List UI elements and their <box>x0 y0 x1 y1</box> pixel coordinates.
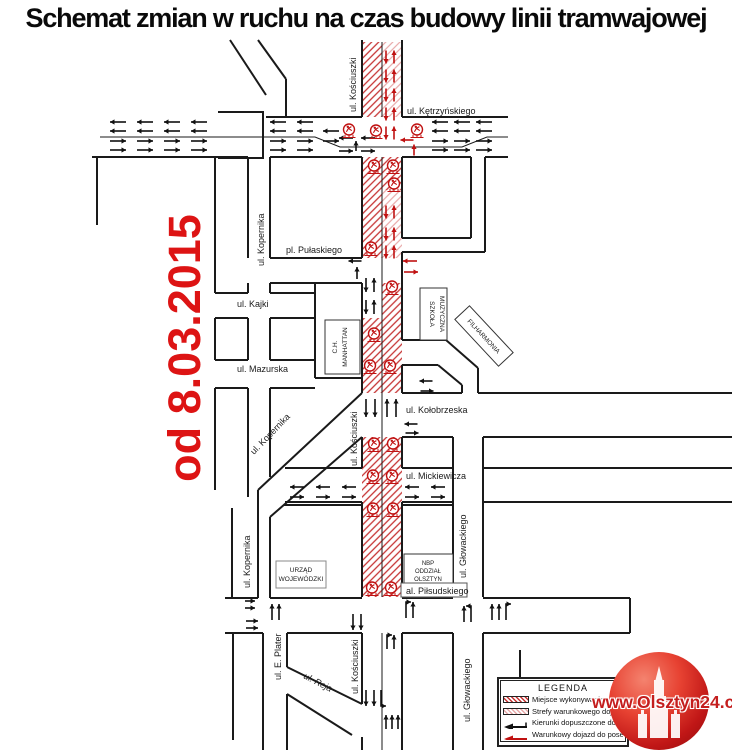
traffic-arrow <box>245 598 255 603</box>
traffic-arrow <box>245 605 255 610</box>
traffic-arrow <box>371 690 376 706</box>
traffic-arrow <box>387 632 392 649</box>
street-label-pulaskiego: pl. Pułaskiego <box>286 245 342 255</box>
building-label-manhattan-1: C.H. <box>332 340 339 353</box>
traffic-arrow <box>371 300 376 314</box>
building-label-manhattan-2: MANHATTAN <box>342 327 349 367</box>
traffic-arrow <box>246 625 258 630</box>
street-label-glowackiego-mid: ul. Głowackiego <box>458 514 468 578</box>
traffic-arrow <box>431 494 445 499</box>
traffic-arrow <box>383 127 388 140</box>
traffic-arrow <box>466 603 471 622</box>
page-title: Schemat zmian w ruchu na czas budowy lin… <box>0 0 732 37</box>
traffic-arrow <box>363 690 368 706</box>
traffic-arrow <box>393 399 398 417</box>
traffic-arrow <box>270 138 286 143</box>
traffic-arrow <box>405 494 419 499</box>
traffic-arrow <box>454 138 470 143</box>
traffic-arrow <box>363 300 368 314</box>
legend-label: Warunkowy dojazd do posesji <box>532 730 623 739</box>
traffic-arrow <box>110 128 126 133</box>
legend-label: Kierunki dopuszczone do ruchu <box>532 718 623 727</box>
traffic-arrow <box>406 430 419 435</box>
traffic-arrow <box>269 604 274 620</box>
traffic-arrow <box>354 267 359 279</box>
traffic-arrow <box>432 128 448 133</box>
traffic-arrow <box>454 147 470 152</box>
building-label-nbp-2: ODDZIAŁ <box>415 569 442 575</box>
traffic-arrow <box>363 399 368 417</box>
traffic-arrow <box>431 484 445 489</box>
traffic-arrow <box>339 148 353 153</box>
street-label-mickiewicza: ul. Mickiewicza <box>406 471 466 481</box>
hatch-dense-swatch <box>503 696 529 703</box>
building-label-szkola-2: MUZYCZNA <box>438 296 445 333</box>
traffic-arrow <box>391 127 396 140</box>
traffic-arrow <box>342 484 356 489</box>
street-label-pilsudskiego: al. Piłsudskiego <box>406 586 469 596</box>
traffic-arrow <box>432 119 448 124</box>
traffic-arrow <box>405 484 419 489</box>
street-label-kosciuszki-bottom: ul. Kościuszki <box>350 639 360 694</box>
traffic-arrow <box>361 148 375 153</box>
traffic-arrow <box>383 715 388 729</box>
traffic-arrow <box>476 138 492 143</box>
traffic-arrow <box>349 258 362 263</box>
traffic-arrow <box>246 618 258 623</box>
traffic-arrow <box>297 128 313 133</box>
traffic-arrow <box>476 119 492 124</box>
traffic-arrow <box>411 145 416 156</box>
traffic-arrow <box>164 128 180 133</box>
traffic-arrow <box>461 606 466 622</box>
traffic-arrow <box>404 269 418 274</box>
traffic-arrow <box>454 119 470 124</box>
black-arrow-icon <box>503 718 529 727</box>
traffic-arrow <box>316 494 330 499</box>
street-label-kosciuszki-mid: ul. Kościuszki <box>349 411 359 466</box>
traffic-arrow <box>476 128 492 133</box>
traffic-arrow <box>297 138 313 143</box>
olsztyn24-watermark-text: www.Olsztyn24.com <box>592 692 732 713</box>
traffic-scheme-page: ul. Kętrzyńskiego ul. Kościuszki ul. Koś… <box>0 0 732 750</box>
street-label-kosciuszki-top: ul. Kościuszki <box>348 57 358 112</box>
traffic-arrow <box>371 278 376 292</box>
traffic-arrow <box>137 147 153 152</box>
street-label-reja: ul. Reja <box>302 671 334 694</box>
traffic-arrow <box>191 138 207 143</box>
building-label-urzad-1: URZĄD <box>290 567 313 574</box>
traffic-arrow <box>297 119 313 124</box>
traffic-arrow <box>432 138 448 143</box>
traffic-arrow <box>403 258 417 263</box>
traffic-arrow <box>489 604 494 620</box>
traffic-arrow <box>137 138 153 143</box>
traffic-arrow <box>164 119 180 124</box>
traffic-arrow <box>363 278 368 292</box>
traffic-arrow <box>496 604 501 620</box>
street-label-mazurska: ul. Mazurska <box>237 364 288 374</box>
traffic-arrow <box>391 635 396 649</box>
traffic-arrow <box>358 614 363 630</box>
traffic-arrow <box>350 614 355 630</box>
roadworks-icon <box>370 125 383 139</box>
traffic-arrow <box>410 602 415 618</box>
traffic-arrow <box>405 421 418 426</box>
traffic-arrow <box>381 690 386 709</box>
traffic-arrow <box>506 601 511 620</box>
traffic-arrow <box>432 147 448 152</box>
traffic-arrow <box>476 147 492 152</box>
legend-item-conditional-access: Warunkowy dojazd do posesji <box>503 729 623 741</box>
traffic-arrow <box>270 147 286 152</box>
street-label-kajki: ul. Kajki <box>237 299 269 309</box>
traffic-arrow <box>323 128 339 133</box>
traffic-arrow <box>406 599 411 618</box>
street-label-kolobrzeska: ul. Kołobrzeska <box>406 405 468 415</box>
traffic-arrow <box>401 137 414 142</box>
legend-item-allowed-directions: Kierunki dopuszczone do ruchu <box>503 717 623 729</box>
building-label-urzad-2: WOJEWÓDZKI <box>279 574 324 583</box>
traffic-arrow <box>164 147 180 152</box>
traffic-arrow <box>137 128 153 133</box>
roadworks-icon <box>343 124 356 138</box>
traffic-arrow <box>191 128 207 133</box>
building-label-nbp-3: OLSZTYN <box>414 577 442 583</box>
traffic-arrow <box>110 119 126 124</box>
traffic-arrow <box>454 128 470 133</box>
street-label-glowackiego-bottom: ul. Głowackiego <box>462 658 472 722</box>
traffic-arrow <box>270 119 286 124</box>
traffic-arrow <box>191 147 207 152</box>
traffic-arrow <box>323 138 339 143</box>
traffic-arrow <box>191 119 207 124</box>
traffic-arrow <box>353 141 358 151</box>
traffic-arrow <box>164 138 180 143</box>
traffic-arrow <box>342 494 356 499</box>
building-label-nbp-1: NBP <box>422 561 434 567</box>
traffic-arrow <box>297 147 313 152</box>
traffic-arrow <box>420 378 433 383</box>
date-annotation: od 8.03.2015 <box>153 193 217 503</box>
traffic-arrow <box>389 715 394 729</box>
street-label-ketrzynskiego: ul. Kętrzyńskiego <box>407 106 476 116</box>
traffic-arrow <box>395 715 400 729</box>
traffic-arrow <box>316 484 330 489</box>
red-arrow-icon <box>503 730 529 739</box>
street-label-eplater: ul. E. Plater <box>273 633 283 680</box>
traffic-arrow <box>137 119 153 124</box>
map-canvas: ul. Kętrzyńskiego ul. Kościuszki ul. Koś… <box>0 0 732 750</box>
traffic-arrow <box>110 138 126 143</box>
street-label-kopernika-top: ul. Kopernika <box>256 213 266 266</box>
traffic-arrow <box>110 147 126 152</box>
building-label-szkola-1: SZKOŁA <box>428 301 435 327</box>
traffic-arrow <box>372 399 377 417</box>
traffic-arrow <box>270 128 286 133</box>
urzad-box <box>276 561 326 588</box>
hatch-light-swatch <box>503 708 529 715</box>
street-label-kopernika-bottom: ul. Kopernika <box>242 535 252 588</box>
roadworks-icon <box>411 124 424 138</box>
traffic-arrow <box>276 604 281 620</box>
traffic-arrow <box>384 399 389 417</box>
